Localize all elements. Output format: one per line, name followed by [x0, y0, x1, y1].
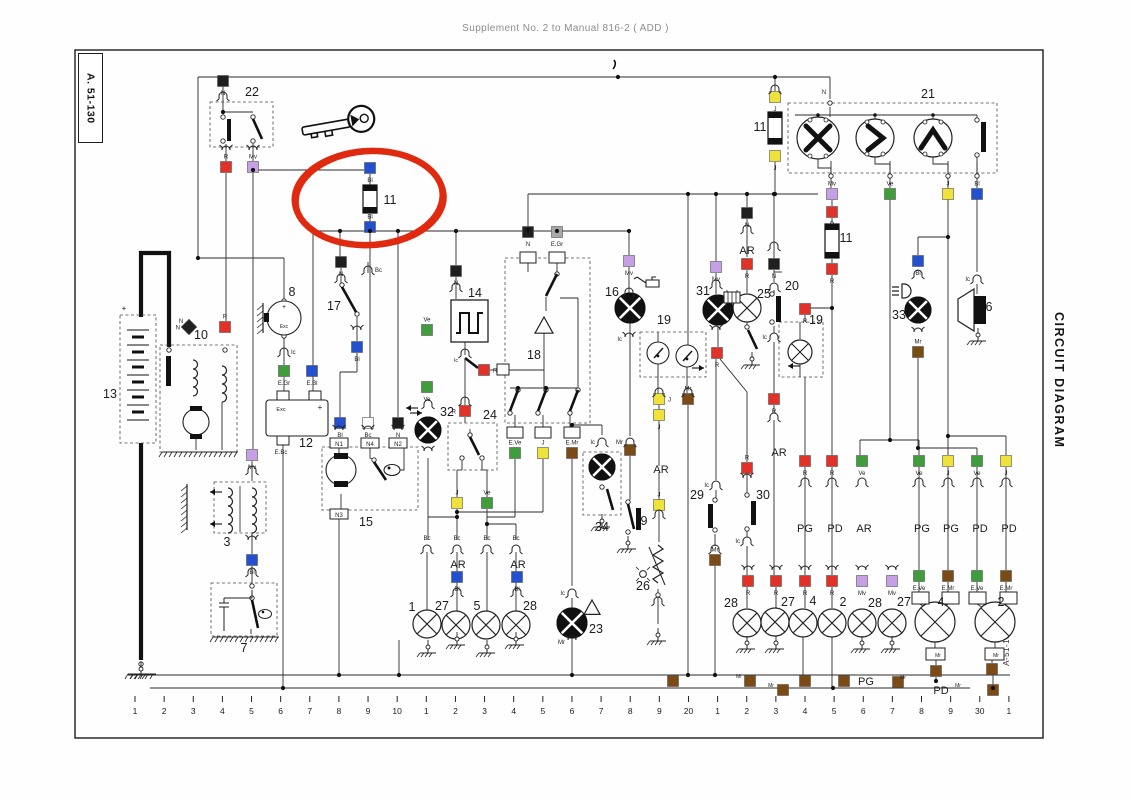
wire-connector	[1001, 571, 1012, 582]
wire-color-label: Bl	[367, 215, 372, 221]
wire-connector	[972, 456, 983, 467]
motor-terminal	[939, 120, 943, 124]
wire-color-label: J	[1005, 471, 1008, 477]
wire-color-label: R	[803, 591, 808, 597]
ground-rail-hatch	[224, 452, 227, 457]
wire-color-label: Mv	[828, 182, 836, 188]
terminal	[770, 320, 774, 324]
wire-color-label: E.Ve	[509, 441, 522, 447]
plug-connector	[422, 446, 435, 451]
ground-hatch	[454, 645, 457, 649]
terminal	[713, 498, 717, 502]
gauge-pivot	[657, 355, 660, 358]
component-number: 34	[595, 520, 609, 534]
axis-number: 9	[657, 706, 662, 716]
ground-terminal	[139, 667, 143, 671]
plug-connector	[886, 565, 899, 570]
ground-rail-hatch	[220, 637, 223, 642]
wire-color-label: R	[803, 319, 808, 325]
wire-route-label: PD	[933, 685, 948, 697]
junction	[281, 686, 285, 690]
ground-hatch	[967, 341, 970, 345]
axis-number: 7	[307, 706, 312, 716]
component-number: 31	[696, 284, 710, 298]
component-box	[120, 315, 156, 443]
axis-number: 1	[424, 706, 429, 716]
ground-rail-hatch	[260, 637, 263, 642]
axis-number: 1	[1007, 706, 1012, 716]
wire-route-label: +	[282, 304, 286, 311]
plug-label: Ic	[291, 350, 296, 356]
wire-color-label: Ve	[886, 182, 894, 188]
motor	[326, 455, 356, 485]
ground-terminal	[976, 333, 980, 337]
terminal	[536, 411, 540, 415]
component-number: 11	[384, 193, 397, 207]
component-number: 18	[527, 348, 541, 362]
wire-connector	[943, 456, 954, 467]
circuit-diagram: N1N4N2N3NRMvBlBlJJMvVeJBlRRNRNMvMvRBlRRJ…	[0, 0, 1131, 800]
wire-connector	[365, 163, 376, 174]
horn-body	[974, 296, 986, 324]
junction	[526, 228, 530, 232]
terminal	[355, 312, 359, 316]
ground-hatch	[446, 645, 449, 649]
wall-hatch	[181, 504, 187, 509]
terminal-box-label: N4	[366, 442, 374, 448]
wall-hatch	[257, 329, 263, 334]
ground-hatch	[629, 549, 632, 553]
component-number: 19	[657, 313, 671, 327]
wire-route-label: Mr	[993, 653, 999, 659]
ground-bar	[768, 645, 784, 649]
plug-connector	[710, 325, 723, 330]
component-number: 28	[523, 599, 537, 613]
motor-terminal	[808, 118, 812, 122]
wire-color-label: Bl	[337, 433, 342, 439]
ground-hatch	[736, 649, 739, 653]
axis-number: 2	[453, 706, 458, 716]
terminal	[975, 174, 979, 178]
motor-terminal	[865, 120, 869, 124]
points-cam	[259, 610, 272, 619]
wire-color-label: R	[745, 274, 750, 280]
wire-connector	[742, 208, 753, 219]
component-number: 19	[809, 313, 823, 327]
wire-connector	[683, 394, 694, 405]
wire-color-label: Bl	[354, 357, 359, 363]
component-box	[448, 423, 497, 470]
wire-color-label: Mv	[625, 271, 633, 277]
junction	[570, 673, 574, 677]
terminal	[250, 584, 254, 588]
axis-number: 3	[482, 706, 487, 716]
plug-connector	[912, 327, 925, 332]
junction	[831, 686, 835, 690]
component-number: 29	[690, 488, 704, 502]
ground-hatch	[488, 653, 491, 657]
wire-color-label: Ve	[858, 471, 866, 477]
terminal-box	[309, 391, 321, 400]
axis-number: 9	[366, 706, 371, 716]
stray-mark	[613, 60, 615, 69]
junction	[397, 673, 401, 677]
wall-hatch	[257, 323, 263, 328]
wire-color-label: Bl	[974, 182, 979, 188]
wire-connector	[422, 325, 433, 336]
component-number: 13	[103, 387, 117, 401]
ground-hatch	[777, 649, 780, 653]
ground-hatch	[484, 653, 487, 657]
arrow-head	[417, 410, 422, 416]
wire-connector	[931, 666, 942, 677]
wiper-motor	[914, 119, 952, 157]
wire-connector	[220, 322, 231, 333]
wire-connector	[857, 456, 868, 467]
ground-bar	[854, 645, 870, 649]
wire-route-label: PD	[1001, 523, 1016, 535]
component-number: 9	[641, 514, 648, 528]
component-number: 26	[636, 579, 650, 593]
wire-connector	[422, 382, 433, 393]
ground-rail-hatch	[210, 637, 213, 642]
ground-hatch	[429, 653, 432, 657]
junction	[745, 192, 749, 196]
brush	[334, 481, 348, 487]
junction	[714, 192, 718, 196]
wire-color-label: R	[774, 591, 779, 597]
wire-color-label: R	[803, 471, 808, 477]
plug-label: Bc	[512, 536, 519, 542]
component-box	[210, 102, 273, 147]
wire-connector	[247, 450, 258, 461]
plug-connector	[768, 333, 781, 342]
component-number: 33	[892, 308, 906, 322]
ground-terminal	[485, 645, 489, 649]
junction	[337, 673, 341, 677]
terminal	[975, 118, 979, 122]
component-number: 11	[840, 231, 853, 245]
wire-color-label: N	[454, 281, 458, 287]
wire-route-label: +	[318, 403, 323, 412]
contact-bar	[227, 119, 231, 141]
wire-color-label: J	[947, 471, 950, 477]
wire-color-label: R	[746, 591, 751, 597]
wire-route-label: PG	[914, 523, 930, 535]
arrow-head	[210, 521, 215, 527]
component-number: 17	[327, 299, 341, 313]
ground-terminal	[656, 633, 660, 637]
wire-route-label: PD	[827, 523, 842, 535]
ground-hatch	[979, 341, 982, 345]
ground-hatch	[889, 649, 892, 653]
terminal	[626, 530, 630, 534]
key-bow-hole	[360, 114, 369, 123]
plug-label: Ic	[590, 440, 595, 446]
ground-rail-hatch	[159, 452, 162, 457]
ground-hatch	[450, 645, 453, 649]
wire-connector	[336, 257, 347, 268]
wire-color-label: J	[456, 491, 459, 497]
ground-hatch	[748, 649, 751, 653]
junction	[251, 168, 255, 172]
plug-label: Ic	[617, 337, 622, 343]
terminal	[251, 115, 255, 119]
axis-number: 4	[511, 706, 516, 716]
wire-route-label: PG	[943, 523, 959, 535]
brush	[190, 434, 202, 439]
terminal	[828, 101, 832, 105]
ground-rail-hatch	[275, 637, 278, 642]
ignition-key-icon	[300, 104, 376, 142]
terminal	[975, 153, 979, 157]
ground-rail-hatch	[174, 452, 177, 457]
ground-rail-hatch	[270, 637, 273, 642]
plug-connector	[770, 565, 783, 570]
ground-hatch	[458, 645, 461, 649]
axis-number: 8	[919, 706, 924, 716]
ground-bar	[479, 649, 495, 653]
wall-hatch	[181, 492, 187, 497]
switch-blade	[470, 437, 479, 455]
axis-number: 6	[570, 706, 575, 716]
fog-lamp-icon	[892, 287, 899, 295]
component-number: 5	[474, 599, 481, 613]
contact-bar	[776, 296, 781, 322]
ground-rail-hatch	[164, 452, 167, 457]
wire-connector	[710, 555, 721, 566]
junction	[713, 673, 717, 677]
axis-number: 7	[599, 706, 604, 716]
motor-terminal	[881, 120, 885, 124]
wire-connector	[451, 266, 462, 277]
plug-connector	[710, 481, 723, 490]
ground-hatch	[741, 365, 744, 369]
wire-connector	[770, 151, 781, 162]
terminal-box	[549, 252, 565, 263]
wire-color-label: J	[668, 398, 671, 404]
ground-hatch	[517, 645, 520, 649]
arrow-head	[406, 405, 411, 411]
component-number: 27	[897, 595, 911, 609]
junction	[196, 256, 200, 260]
plug-connectors-layer: BcIcBcBcBcBcIcMrIcMrIcIcIcIcIc	[217, 85, 1013, 646]
ground-rail-hatch	[225, 637, 228, 642]
ground-hatch	[851, 649, 854, 653]
plug-label: Ic	[735, 539, 740, 545]
wire-color-label: J	[658, 425, 661, 431]
ground-hatch	[621, 549, 624, 553]
wire-color-label: Mr	[712, 548, 719, 554]
ground-rail-hatch	[219, 452, 222, 457]
ground-terminal	[890, 641, 894, 645]
wire-connector	[625, 445, 636, 456]
terminal-box	[520, 252, 536, 263]
plug-label: Bc	[453, 536, 460, 542]
component-number: 2	[840, 595, 847, 609]
component-number: 1	[409, 600, 416, 614]
wall-hatch	[181, 528, 187, 533]
wire-connector	[913, 256, 924, 267]
terminal	[167, 348, 171, 352]
switch-blade	[546, 274, 557, 296]
switch-blade	[570, 390, 578, 411]
ground-rail-hatch	[179, 452, 182, 457]
wire	[400, 448, 404, 470]
switch-blade	[538, 390, 546, 411]
wire-connector	[745, 676, 756, 687]
ground-bar	[449, 641, 465, 645]
fuse-cap	[825, 252, 839, 258]
warning-triangle-icon	[535, 317, 553, 333]
switch-blade	[465, 358, 478, 368]
ground-rail-hatch	[169, 452, 172, 457]
terminal	[251, 139, 255, 143]
junction	[773, 75, 777, 79]
plug-connector	[596, 438, 609, 447]
component-number: 15	[359, 515, 373, 529]
wire-color-label: E.Gr	[551, 242, 563, 248]
wire-connector	[778, 685, 789, 696]
wire-color-label: Ve	[915, 471, 923, 477]
junction	[570, 423, 574, 427]
wire-color-label: N	[772, 274, 776, 280]
terminal	[745, 493, 749, 497]
wire-color-label: N	[745, 223, 749, 229]
contact-bar	[708, 504, 713, 528]
junction	[555, 229, 559, 233]
axis-number: 4	[803, 706, 808, 716]
wire-connector	[800, 576, 811, 587]
wire-connector	[538, 448, 549, 459]
ground-hatch	[971, 341, 974, 345]
plug-label: Ic	[762, 335, 767, 341]
wire-connector	[827, 456, 838, 467]
wire-connector	[827, 207, 838, 218]
wire-connector	[857, 576, 868, 587]
wire-color-label: J	[774, 107, 777, 113]
battery-cable	[141, 253, 169, 347]
gauge-pivot	[686, 358, 689, 361]
switch-blade	[510, 390, 518, 411]
plug-connector	[971, 275, 984, 284]
plug-connector	[856, 478, 869, 487]
wire-connector	[1001, 456, 1012, 467]
wire-color-label: E.Bl	[306, 381, 317, 387]
ground-hatch	[513, 645, 516, 649]
component-number: 4	[810, 594, 817, 608]
switch-blade	[342, 287, 356, 312]
wire-route-label: N	[179, 319, 183, 325]
terminal	[508, 411, 512, 415]
component-number: 10	[194, 328, 208, 342]
wire-connector	[769, 259, 780, 270]
wire-route-label: Mr	[935, 653, 941, 659]
axis-number: 5	[249, 706, 254, 716]
wire-connector	[460, 406, 471, 417]
ground-hatch	[655, 641, 658, 645]
wire-color-label: R	[715, 363, 720, 369]
terminal	[221, 139, 225, 143]
wire-connector	[510, 448, 521, 459]
terminal	[568, 411, 572, 415]
wire-connector	[887, 576, 898, 587]
arrow-head	[699, 365, 704, 371]
axis-number: 9	[948, 706, 953, 716]
axis-number: 3	[773, 706, 778, 716]
ground-bar	[508, 641, 524, 645]
junction	[516, 386, 520, 390]
wire-color-label: Mv	[249, 155, 257, 161]
junction	[888, 438, 892, 442]
wire-color-label: J	[658, 493, 661, 499]
junction	[816, 113, 820, 117]
motor	[183, 409, 209, 435]
terminal-box	[535, 427, 551, 438]
terminal	[829, 174, 833, 178]
terminal	[223, 348, 227, 352]
junction	[368, 229, 372, 233]
component-number: 11	[754, 120, 767, 134]
component-number: 30	[756, 488, 770, 502]
terminal-box	[277, 436, 289, 445]
plug-label: Mr	[616, 440, 623, 446]
ground-terminal	[626, 541, 630, 545]
wire-connector	[479, 365, 490, 376]
wall-hatch	[181, 510, 187, 515]
wire-route-label: Exc	[276, 407, 285, 413]
wire-connector	[914, 571, 925, 582]
wire-connector	[624, 256, 635, 267]
plug-label: Ic	[965, 277, 970, 283]
wire-connector	[654, 410, 665, 421]
wire-connector	[307, 366, 318, 377]
motor-terminal	[923, 152, 927, 156]
plug-connector	[741, 537, 754, 546]
component-number: 20	[785, 279, 799, 293]
motor-terminal	[824, 154, 828, 158]
ground-hatch	[417, 653, 420, 657]
junction	[338, 229, 342, 233]
wire-color-label: Mr	[685, 387, 692, 393]
wall-hatch	[181, 516, 187, 521]
wire-connector	[943, 189, 954, 200]
annotation-layer	[291, 60, 616, 250]
junction	[991, 686, 995, 690]
plug-connector	[742, 565, 755, 570]
wire-color-label: Ve	[973, 471, 981, 477]
component-number: 6	[986, 300, 993, 314]
wire-route-label: AR	[856, 523, 871, 535]
ground-hatch	[881, 649, 884, 653]
junction	[830, 306, 834, 310]
junction	[946, 235, 950, 239]
ground-hatch	[659, 641, 662, 645]
ground-hatch	[740, 649, 743, 653]
motor-terminal	[865, 152, 869, 156]
coil	[193, 360, 198, 396]
wire-connector	[668, 676, 679, 687]
ground-hatch	[749, 365, 752, 369]
junction	[616, 75, 620, 79]
junction	[931, 113, 935, 117]
ground-rail-hatch	[250, 637, 253, 642]
switch-blade	[748, 330, 757, 349]
ground-rail-hatch	[235, 637, 238, 642]
component-number: 28	[868, 596, 882, 610]
warning-triangle-icon	[584, 600, 600, 614]
ground-hatch	[745, 365, 748, 369]
